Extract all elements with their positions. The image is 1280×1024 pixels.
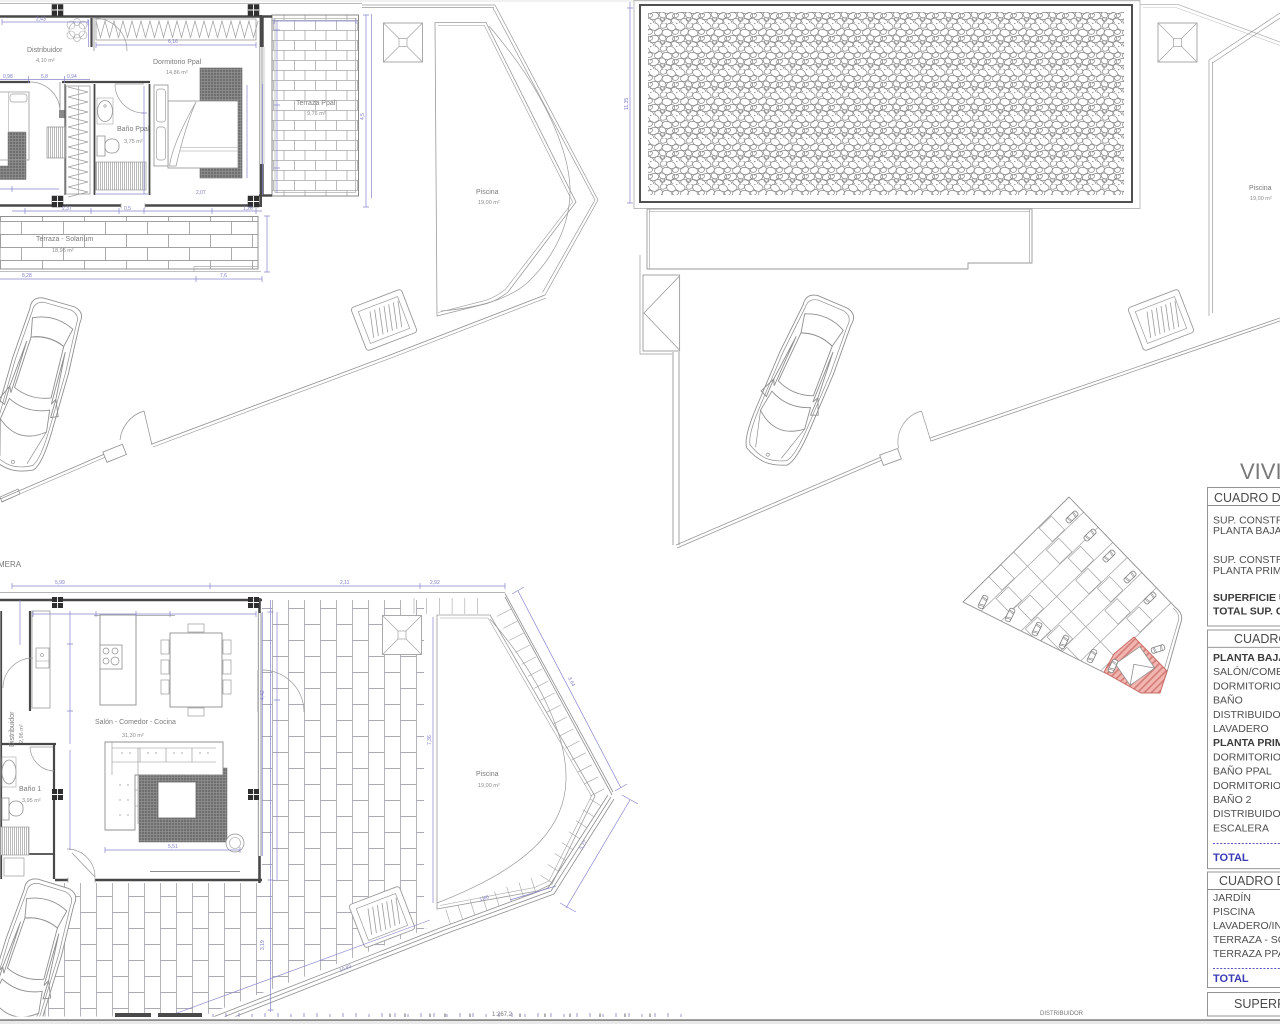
svg-text:BAÑO 2: BAÑO 2 [1213,793,1252,806]
svg-text:BAÑO: BAÑO [1213,694,1243,707]
svg-text:TOTAL: TOTAL [1213,973,1249,985]
svg-text:7,36: 7,36 [427,735,433,745]
svg-text:3,75 m²: 3,75 m² [124,139,143,145]
svg-text:2,92: 2,92 [430,580,440,586]
svg-text:MERA: MERA [0,560,22,569]
svg-text:3,95 m²: 3,95 m² [22,798,41,804]
svg-text:DORMITORIO 1: DORMITORIO 1 [1213,680,1280,692]
svg-text:4,42: 4,42 [260,690,266,700]
svg-text:6,16: 6,16 [168,39,178,45]
svg-text:2,37: 2,37 [62,206,72,212]
svg-text:Distribuidor: Distribuidor [9,711,16,747]
svg-text:LAVADERO/INST: LAVADERO/INST [1213,920,1280,932]
svg-text:4,10 m²: 4,10 m² [36,58,55,64]
svg-text:SALÓN/COMEDOR: SALÓN/COMEDOR [1213,665,1280,678]
svg-text:TERRAZA - SOL: TERRAZA - SOL [1213,934,1280,946]
svg-text:SUPERFIC: SUPERFIC [1234,997,1280,1011]
svg-text:ESCALERA: ESCALERA [1213,822,1269,834]
svg-text:Terraza - Solarium: Terraza - Solarium [36,236,93,243]
svg-text:Salón - Comedor - Cocina: Salón - Comedor - Cocina [95,719,176,726]
svg-text:TOTAL SUP. CON: TOTAL SUP. CON [1213,606,1280,618]
svg-text:8,28: 8,28 [22,273,32,279]
svg-text:PLANTA BAJA: PLANTA BAJA [1213,525,1280,537]
svg-text:5,99: 5,99 [55,580,65,586]
svg-text:2,43: 2,43 [36,17,46,23]
svg-text:BAÑO PPAL: BAÑO PPAL [1213,765,1272,778]
svg-text:JARDÍN: JARDÍN [1213,891,1251,904]
svg-text:Dormitorio Ppal: Dormitorio Ppal [153,59,202,66]
svg-text:19,00 m²: 19,00 m² [1250,196,1272,202]
svg-text:CUADRO DE: CUADRO DE [1219,874,1280,888]
svg-text:14,86 m²: 14,86 m² [166,70,188,76]
svg-text:CUADRO DE: CUADRO DE [1234,632,1280,646]
svg-text:VIVIENDA: VIVIENDA [1240,459,1280,484]
svg-text:4,5: 4,5 [360,113,366,120]
svg-text:TOTAL: TOTAL [1213,852,1249,864]
svg-text:TERRAZA PPAL: TERRAZA PPAL [1213,948,1280,960]
svg-text:PLANTA BAJA: PLANTA BAJA [1213,652,1280,664]
svg-text:19,00 m²: 19,00 m² [478,200,500,206]
svg-text:Baño 1: Baño 1 [19,786,41,793]
svg-text:CUADRO DE SUP: CUADRO DE SUP [1214,491,1280,505]
svg-text:5,8: 5,8 [41,74,48,80]
svg-text:9,76 m²: 9,76 m² [307,111,326,117]
svg-text:DISTRIBUIDOR: DISTRIBUIDOR [1040,1011,1084,1017]
svg-text:Piscina: Piscina [476,189,499,196]
svg-text:DISTRIBUIDOR: DISTRIBUIDOR [1213,709,1280,721]
svg-text:2,11: 2,11 [340,580,350,586]
svg-text:PLANTA PRIMERA: PLANTA PRIMERA [1213,737,1280,749]
svg-text:0,5: 0,5 [124,206,131,212]
svg-text:2,07: 2,07 [196,190,206,196]
svg-text:18,95 m²: 18,95 m² [52,248,74,254]
svg-text:PISCINA: PISCINA [1213,906,1255,918]
svg-text:10,83: 10,83 [339,964,353,974]
svg-text:Piscina: Piscina [476,771,499,778]
svg-text:Terraza Ppal: Terraza Ppal [296,100,336,107]
svg-text:0,94: 0,94 [67,74,77,80]
svg-text:Distribuidor: Distribuidor [27,47,63,54]
svg-text:DORMITORIO PPAL: DORMITORIO PPAL [1213,751,1280,763]
svg-text:31,30 m²: 31,30 m² [122,733,144,739]
svg-text:DISTRIBUIDOR: DISTRIBUIDOR [1213,808,1280,820]
svg-text:2,96 m²: 2,96 m² [19,724,25,743]
svg-text:DORMITORIO 2: DORMITORIO 2 [1213,780,1280,792]
svg-text:5,51: 5,51 [168,844,178,850]
svg-text:Piscina: Piscina [1249,185,1272,192]
svg-text:Baño Ppal: Baño Ppal [117,126,150,133]
svg-text:0,98: 0,98 [3,74,13,80]
svg-text:11,35: 11,35 [624,98,630,110]
svg-text:1:267,2: 1:267,2 [492,1012,513,1018]
svg-text:LAVADERO: LAVADERO [1213,723,1269,735]
svg-text:19,00 m²: 19,00 m² [478,783,500,789]
svg-text:7,6: 7,6 [220,273,227,279]
svg-text:1,26: 1,26 [243,206,253,212]
svg-text:PLANTA PRIMERA: PLANTA PRIMERA [1213,565,1280,577]
svg-text:SUPERFICIE UTIL: SUPERFICIE UTIL [1213,592,1280,604]
svg-text:3,19: 3,19 [260,940,266,950]
